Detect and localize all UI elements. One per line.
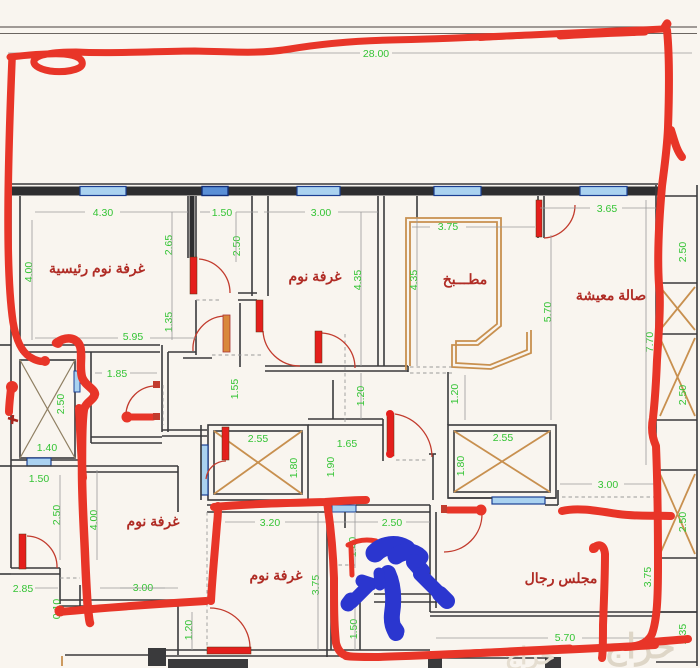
svg-text:2.50: 2.50: [231, 236, 243, 257]
svg-text:4.35: 4.35: [408, 270, 420, 291]
svg-text:3.75: 3.75: [642, 567, 654, 588]
svg-text:1.20: 1.20: [355, 386, 367, 407]
svg-text:1.85: 1.85: [107, 368, 128, 380]
svg-text:1.80: 1.80: [455, 456, 467, 477]
svg-text:3.20: 3.20: [260, 517, 281, 529]
svg-text:1.90: 1.90: [325, 457, 337, 478]
svg-text:5.70: 5.70: [555, 632, 576, 644]
svg-text:2.50: 2.50: [382, 517, 403, 529]
svg-text:مجلس رجال: مجلس رجال: [525, 570, 598, 587]
svg-text:3.65: 3.65: [597, 203, 618, 215]
svg-text:1.50: 1.50: [29, 473, 50, 485]
svg-text:2.65: 2.65: [163, 235, 175, 256]
svg-text:صالة معيشة: صالة معيشة: [576, 287, 646, 303]
svg-text:3.75: 3.75: [310, 575, 322, 596]
svg-text:5.95: 5.95: [123, 331, 144, 343]
svg-text:2.50: 2.50: [51, 505, 63, 526]
svg-text:1.20: 1.20: [449, 384, 461, 405]
svg-text:3.75: 3.75: [438, 221, 459, 233]
svg-text:1.20: 1.20: [183, 620, 195, 641]
svg-text:28.00: 28.00: [363, 48, 389, 60]
svg-text:2.85: 2.85: [13, 583, 34, 595]
svg-text:غرفة نوم: غرفة نوم: [289, 268, 343, 285]
svg-text:4.00: 4.00: [23, 262, 35, 283]
svg-text:2.50: 2.50: [677, 385, 689, 406]
svg-text:3.00: 3.00: [598, 479, 619, 491]
svg-text:3.00: 3.00: [311, 207, 332, 219]
svg-text:2.55: 2.55: [493, 432, 514, 444]
svg-text:2.55: 2.55: [248, 433, 269, 445]
svg-text:1.80: 1.80: [288, 458, 300, 479]
svg-text:4.00: 4.00: [88, 510, 100, 531]
svg-text:1.35: 1.35: [163, 312, 175, 333]
svg-text:4.30: 4.30: [93, 207, 114, 219]
svg-text:1.55: 1.55: [229, 379, 241, 400]
svg-text:1.40: 1.40: [37, 442, 58, 454]
svg-text:1.50: 1.50: [348, 619, 360, 640]
svg-text:5.70: 5.70: [542, 302, 554, 323]
svg-text:1.50: 1.50: [212, 207, 233, 219]
svg-text:غرفة نوم: غرفة نوم: [127, 513, 181, 530]
svg-text:1.65: 1.65: [337, 438, 358, 450]
svg-text:غرفة نوم: غرفة نوم: [250, 567, 304, 584]
svg-text:2.50: 2.50: [55, 394, 67, 415]
svg-text:2.50: 2.50: [677, 242, 689, 263]
svg-text:4.35: 4.35: [352, 270, 364, 291]
svg-text:مطـــبخ: مطـــبخ: [443, 271, 488, 288]
svg-text:غرفة نوم رئيسية: غرفة نوم رئيسية: [49, 260, 146, 277]
svg-text:2.50: 2.50: [677, 512, 689, 533]
